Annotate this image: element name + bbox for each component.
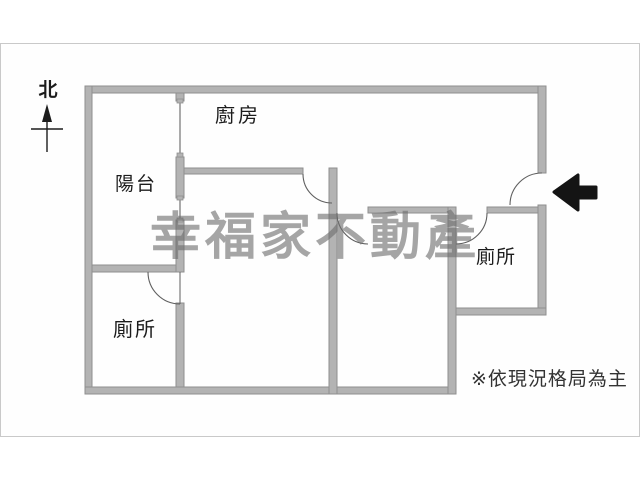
window-cap xyxy=(177,99,183,103)
floorplan-image: 北 廚房 陽台 廁所 廁所 幸福家不動產 ※依現況格局為主 xyxy=(0,0,640,480)
wall-kitchen-bottom xyxy=(184,168,303,174)
north-label: 北 xyxy=(34,81,62,100)
wall-center-vertical xyxy=(329,168,337,394)
agency-watermark: 幸福家不動產 xyxy=(150,211,480,262)
disclaimer-note: ※依現況格局為主 xyxy=(471,370,628,389)
window-cap xyxy=(177,196,183,200)
wall-right-lower xyxy=(538,205,546,315)
wall-toilet-right-bottom xyxy=(448,308,546,315)
room-label-kitchen: 廚房 xyxy=(215,106,261,126)
wall-left xyxy=(85,86,92,394)
room-label-toilet-right: 廁所 xyxy=(476,248,516,267)
wall-toilet-left-right xyxy=(176,303,184,387)
room-label-toilet-left: 廁所 xyxy=(113,320,157,340)
room-label-balcony: 陽台 xyxy=(115,175,157,194)
north-arrow-icon xyxy=(31,104,63,152)
door-arc-toilet-left xyxy=(148,272,180,304)
door-arc-entrance xyxy=(510,173,542,205)
wall-divider-mid xyxy=(176,157,184,198)
entrance-arrow-icon xyxy=(554,175,596,210)
wall-hall-right xyxy=(487,207,538,213)
wall-bottom xyxy=(85,387,455,394)
wall-right-upper xyxy=(538,86,546,173)
wall-balcony-bottom xyxy=(92,265,176,272)
wall-top xyxy=(85,86,546,93)
window-cap xyxy=(177,153,183,157)
door-arc-kitchen xyxy=(303,174,332,203)
